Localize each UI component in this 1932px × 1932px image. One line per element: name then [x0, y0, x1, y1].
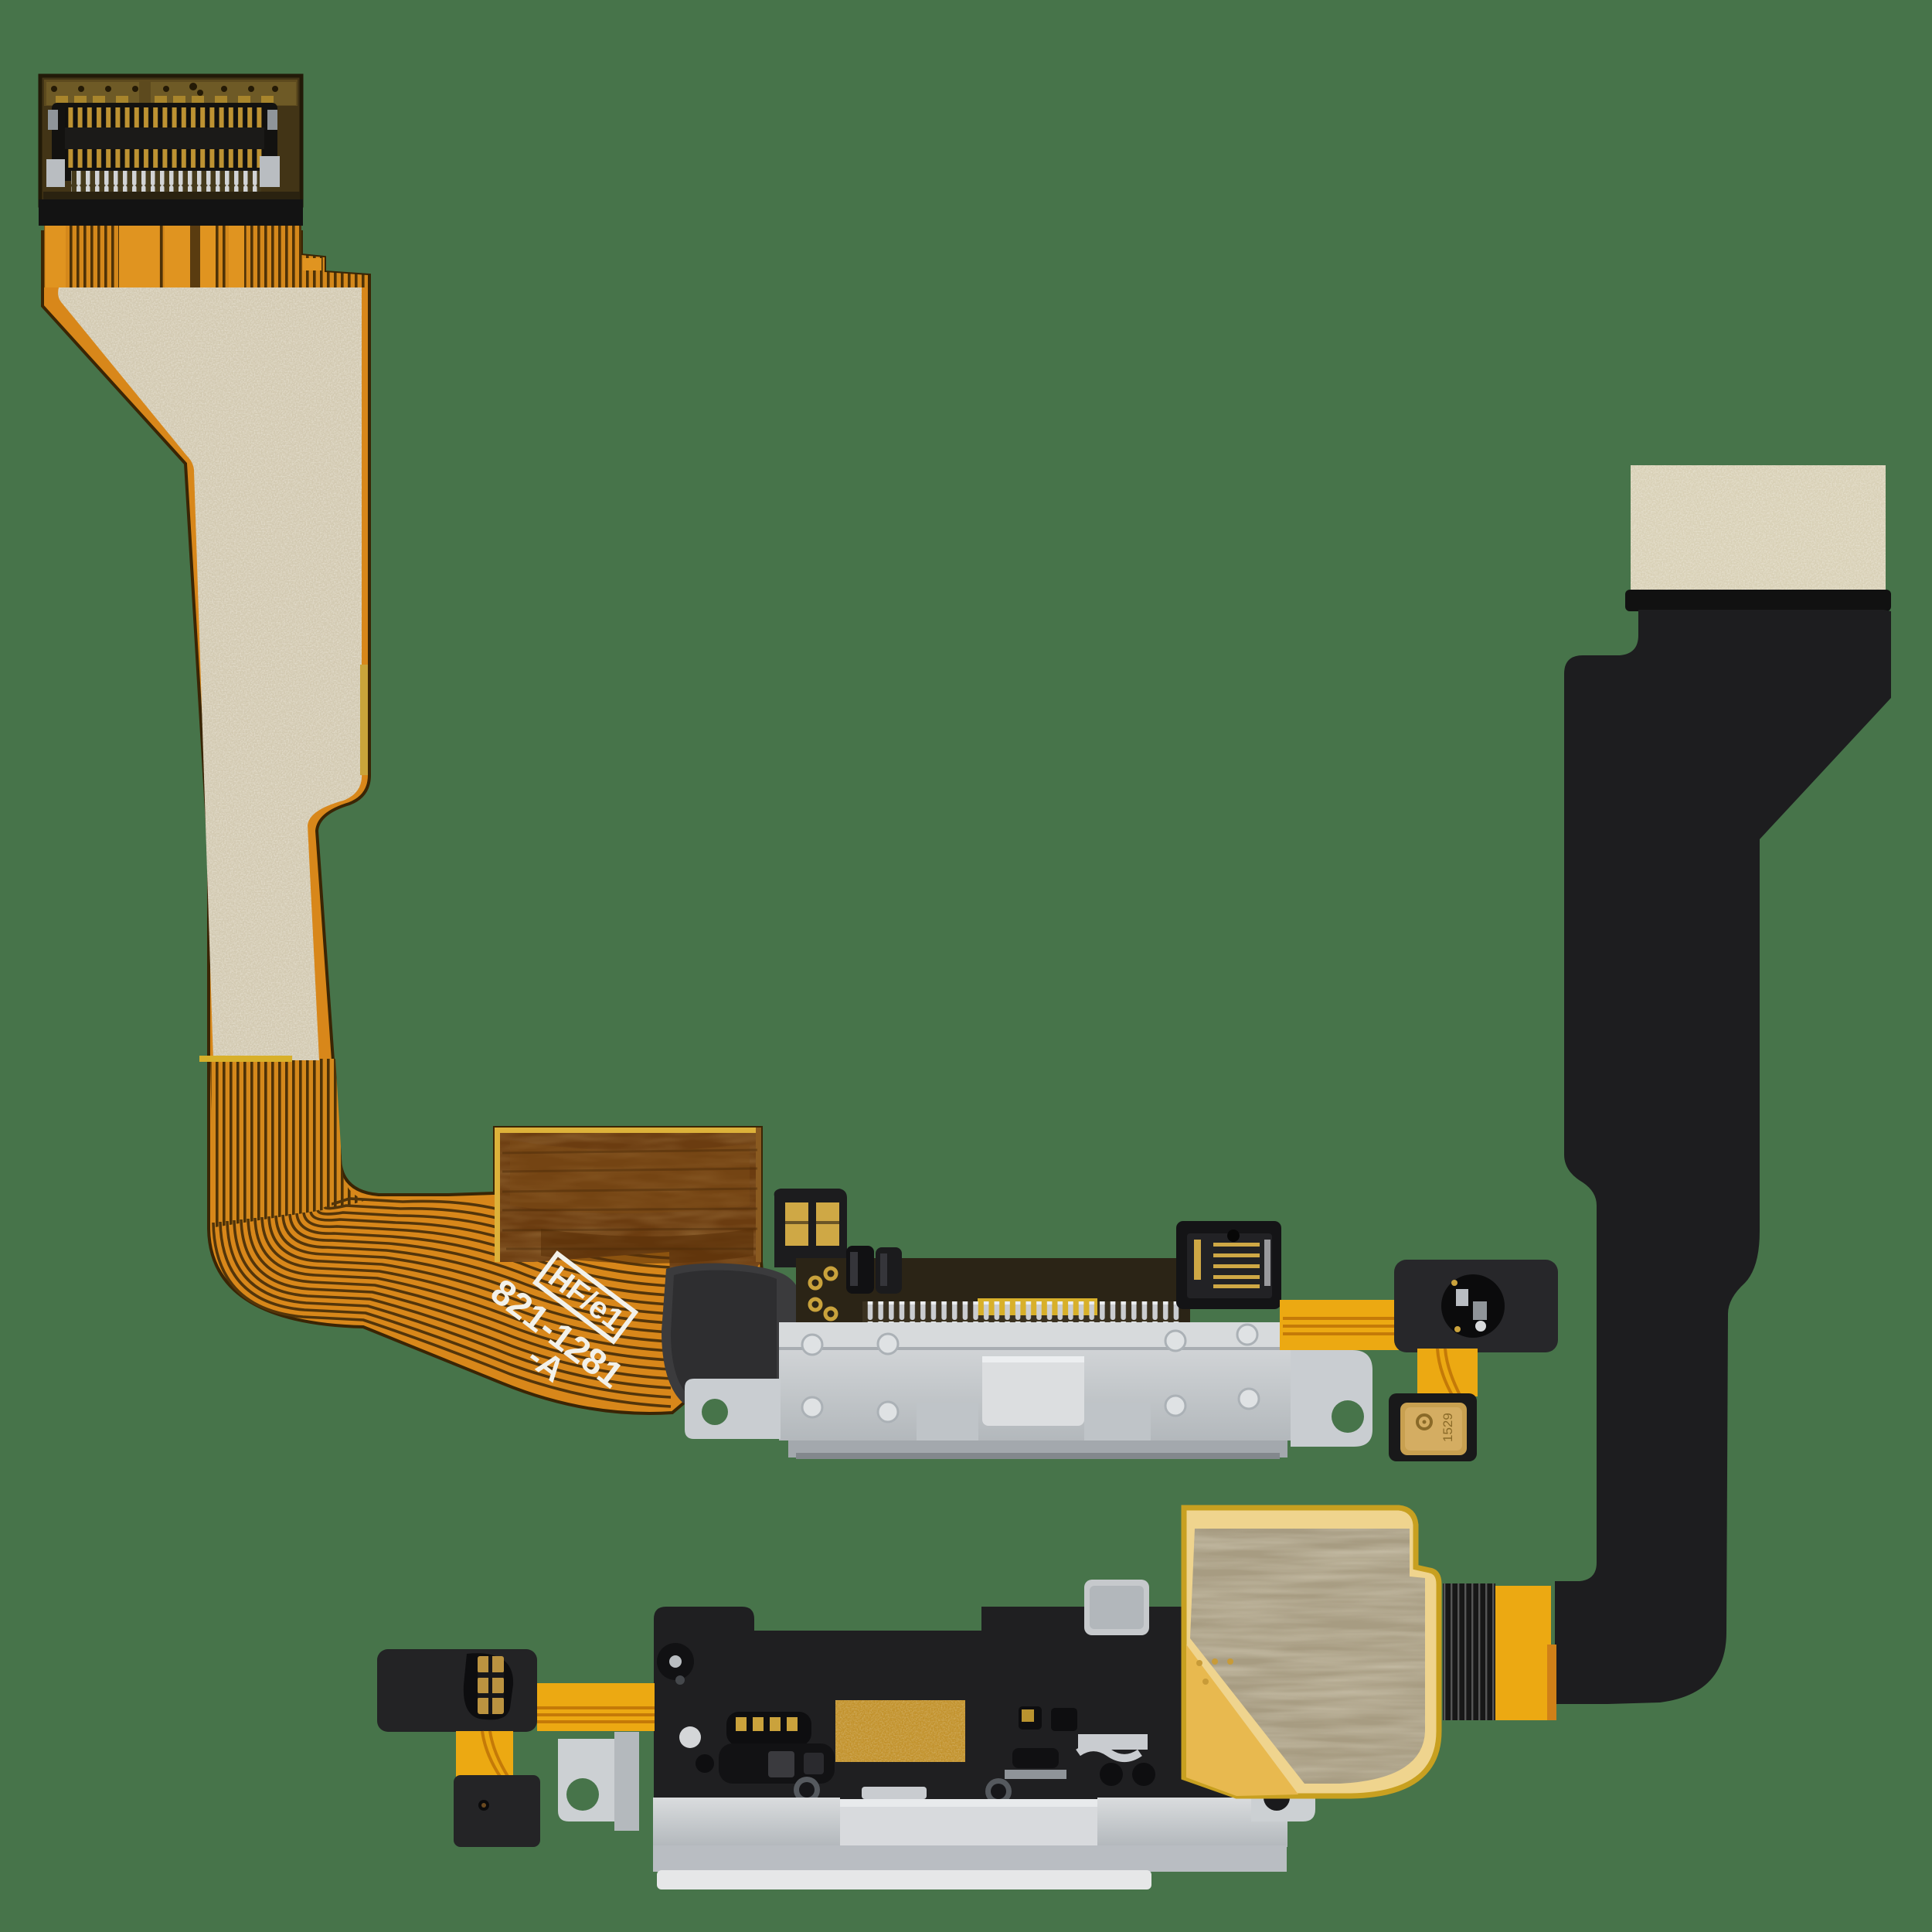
svg-text:1529: 1529 [1440, 1413, 1455, 1442]
